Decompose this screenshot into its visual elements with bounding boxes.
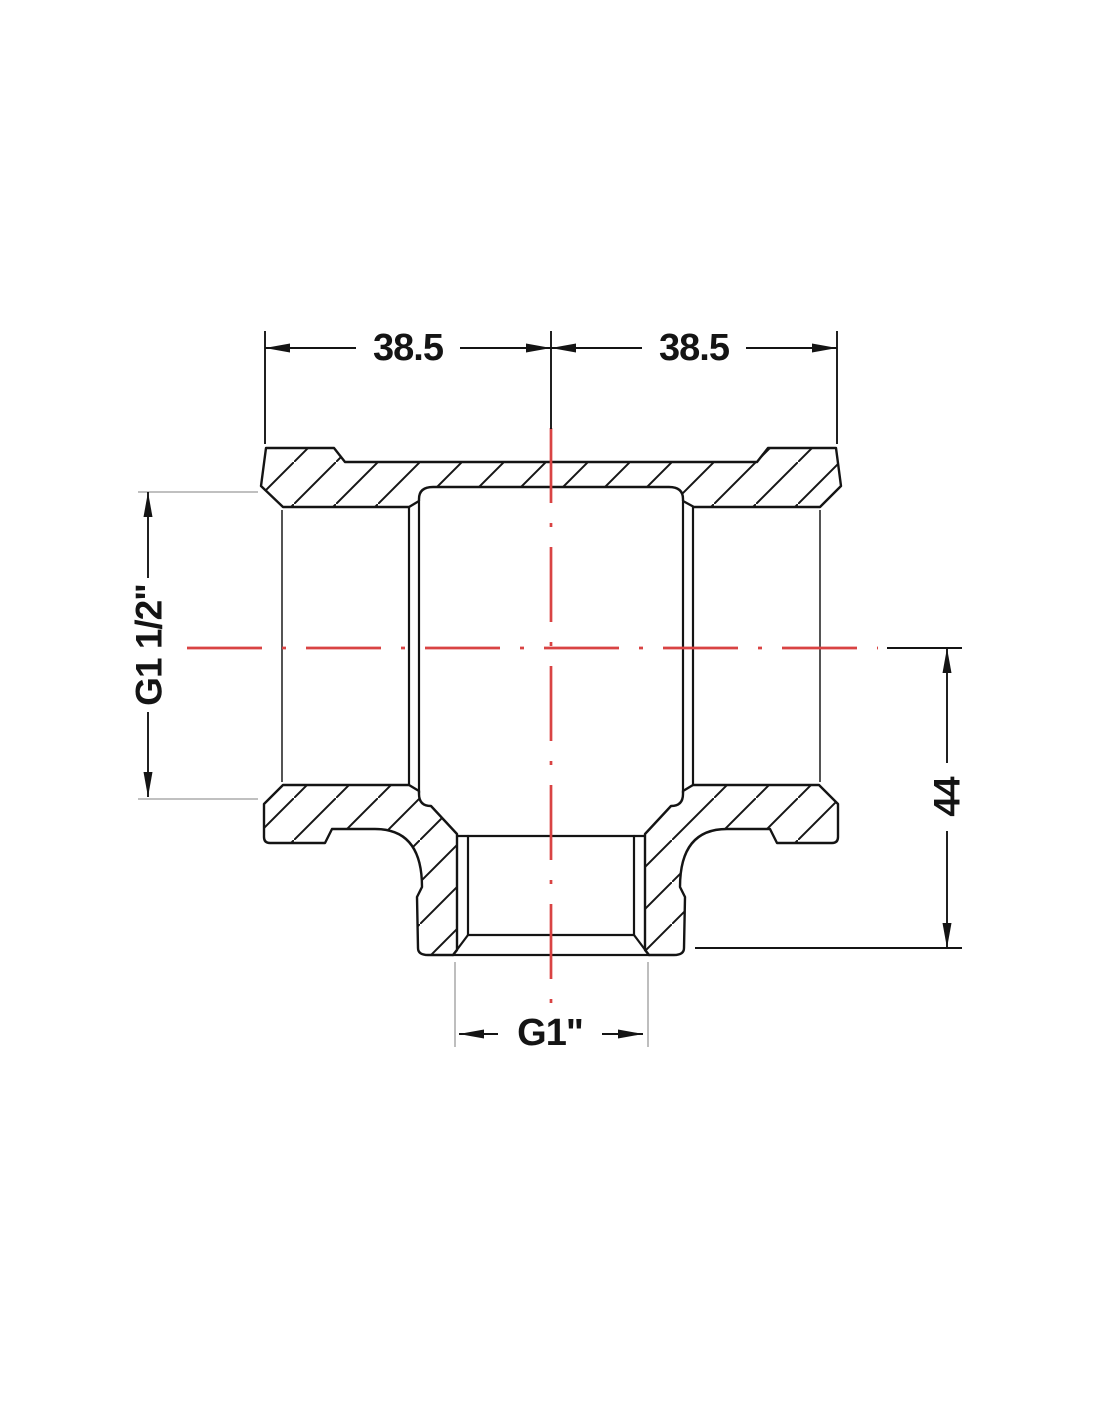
centerlines	[187, 428, 878, 1011]
tee-fitting-section-drawing: 38.5 38.5 G1 1/2"	[0, 0, 1100, 1422]
dimension-left-port: G1 1/2"	[126, 492, 258, 799]
body-lower-left-wall	[264, 785, 457, 955]
arrow-right	[618, 1030, 643, 1039]
arrow-up	[943, 648, 952, 673]
dim-text-top-left: 38.5	[373, 327, 444, 369]
dim-text-bottom-port: G1"	[517, 1012, 583, 1054]
arrow-left	[459, 1030, 484, 1039]
dim-text-top-right: 38.5	[659, 327, 730, 369]
arrow-down	[144, 772, 153, 797]
dim-text-left-port: G1 1/2"	[129, 584, 170, 706]
arrow-down	[943, 923, 952, 948]
dimension-top-widths: 38.5 38.5	[265, 324, 837, 444]
dim-text-branch-height: 44	[927, 776, 968, 817]
arrow-center-right	[551, 344, 576, 353]
arrow-center-left	[526, 344, 551, 353]
arrow-right-out	[812, 344, 837, 353]
arrow-left-out	[265, 344, 290, 353]
technical-drawing-canvas: 38.5 38.5 G1 1/2"	[0, 0, 1100, 1422]
arrow-up	[144, 492, 153, 517]
body-lower-right-wall	[645, 785, 838, 955]
